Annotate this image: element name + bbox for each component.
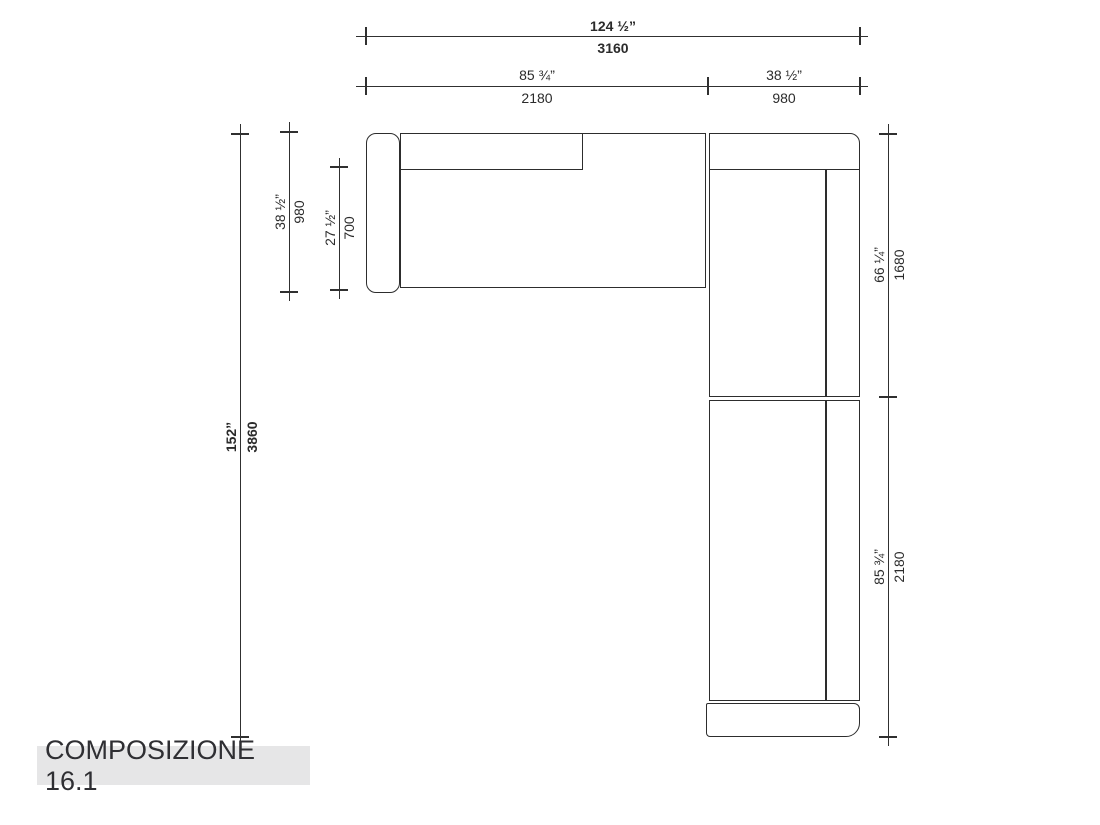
dim-tick [859,27,860,45]
dim-tick [879,736,897,737]
corner-backrest-right-line [825,170,827,397]
dim-label-corner-width-in: 38 ½” [766,68,802,82]
dim-tick [330,166,348,167]
sofa-main-backrest [400,133,583,170]
dim-label-right-lower-mm: 2180 [892,551,906,582]
sofa-left-armrest [366,133,400,293]
dim-label-left-depth-in: 38 ½” [273,194,287,230]
dim-label-seat-width-in: 85 ¾” [519,68,555,82]
dim-label-corner-width-mm: 980 [772,91,795,105]
dim-tick [365,77,366,95]
dim-tick [707,77,708,95]
dim-line-right-heights [888,124,889,746]
dim-label-seat-depth-in: 27 ½” [323,210,337,246]
dim-label-overall-depth-in: 152” [224,422,238,452]
dim-tick [330,289,348,290]
dim-label-left-depth-mm: 980 [292,200,306,223]
sofa-lower-module [709,400,860,701]
dim-label-right-lower-in: 85 ¾” [872,549,886,585]
dim-label-overall-width-mm: 3160 [597,41,628,55]
dim-tick [879,133,897,134]
dim-tick [365,27,366,45]
dim-label-seat-depth-mm: 700 [342,216,356,239]
dim-label-right-upper-mm: 1680 [892,249,906,280]
technical-drawing-canvas: 124 ½” 3160 85 ¾” 2180 38 ½” 980 152” 38… [0,0,1100,825]
sofa-bottom-armrest [706,703,860,737]
dim-label-overall-width-in: 124 ½” [590,19,636,33]
composition-title-box: COMPOSIZIONE 16.1 [37,746,310,785]
dim-label-right-upper-in: 66 ¼” [872,247,886,283]
dim-label-overall-depth-mm: 3860 [245,421,259,452]
dim-tick [280,291,298,292]
dim-line-overall-width [356,36,868,37]
dim-label-seat-width-mm: 2180 [521,91,552,105]
composition-title: COMPOSIZIONE 16.1 [37,735,310,797]
dim-line-overall-depth [240,124,241,746]
sofa-corner-module [709,133,860,397]
dim-tick [280,131,298,132]
lower-backrest-right-line [825,401,827,701]
dim-tick [879,396,897,397]
dim-tick [859,77,860,95]
corner-backrest-top-line [710,169,859,171]
dim-line-segment-widths [356,86,868,87]
dim-tick [231,133,249,134]
